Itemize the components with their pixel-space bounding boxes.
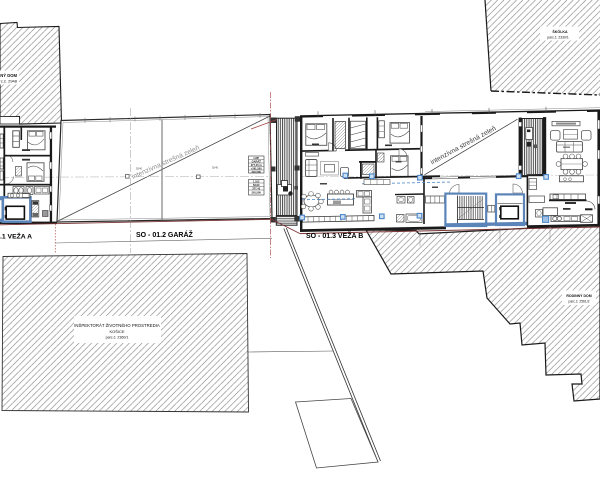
svg-text:SO - 01.3 VEŽA B: SO - 01.3 VEŽA B (306, 231, 363, 240)
svg-text:291,500: 291,500 (252, 170, 262, 174)
svg-text:377,45 m: 377,45 m (251, 163, 263, 167)
svg-text:KOŠICE: KOŠICE (109, 329, 124, 334)
svg-text:RODINNÝ DOM: RODINNÝ DOM (566, 293, 591, 298)
svg-text:INŠPEKTORÁT ŽIVOTNÉHO PROSTRED: INŠPEKTORÁT ŽIVOTNÉHO PROSTREDIA (74, 323, 160, 328)
svg-text:1.NP: 1.NP (253, 156, 259, 160)
svg-text:SO - 01.2 GARÁŽ: SO - 01.2 GARÁŽ (136, 230, 194, 239)
svg-text:ŠKÔLKA: ŠKÔLKA (552, 29, 568, 34)
svg-text:parc.č. 2561/2: parc.č. 2561/2 (569, 300, 590, 304)
svg-text:RODINNÝ DOM: RODINNÝ DOM (0, 73, 18, 78)
svg-text:377,45: 377,45 (252, 187, 260, 191)
svg-text:5540: 5540 (212, 166, 219, 170)
svg-text:parc.č. 2330/1: parc.č. 2330/1 (547, 36, 569, 40)
svg-text:parc.č. 2948: parc.č. 2948 (0, 79, 18, 84)
svg-text:1.102: 1.102 (253, 180, 260, 184)
svg-text:63,90: 63,90 (253, 183, 260, 187)
svg-text:291,500: 291,500 (252, 191, 262, 195)
svg-text:.1 VEŽA A: .1 VEŽA A (0, 232, 32, 241)
svg-text:parc.č. 2360/1: parc.č. 2360/1 (106, 336, 129, 340)
